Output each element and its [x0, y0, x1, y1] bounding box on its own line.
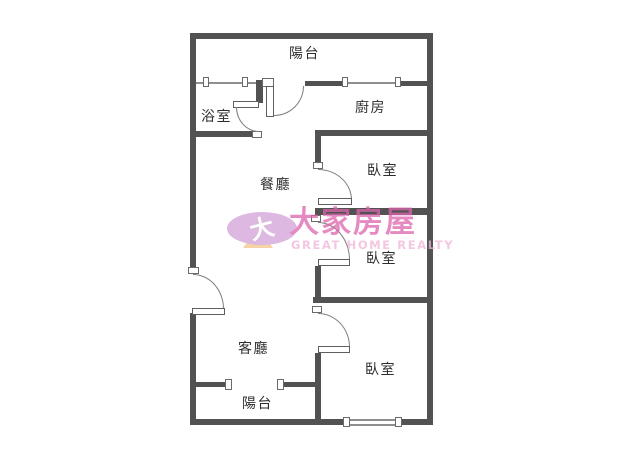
door-jamb-entrance: [188, 267, 199, 274]
brand-logo: 大: [227, 212, 297, 245]
room-label-bedroom-bottom: 臥室: [365, 363, 396, 377]
window-bedroom3: [350, 419, 395, 426]
room-label-bathroom: 浴室: [201, 110, 232, 124]
door-swing-arc-balcony-entry: [274, 86, 304, 116]
window-cap: [395, 417, 402, 427]
wall-balcony2-left: [196, 382, 225, 387]
room-label-balcony-bottom: 陽台: [242, 397, 273, 411]
door-swing-arc-bedroom3: [318, 313, 350, 347]
door-jamb-bedroom3: [312, 306, 322, 313]
room-label-bedroom-middle: 臥室: [366, 252, 397, 266]
wall-outer-left-lower: [190, 313, 196, 425]
logo-roof-triangle: [243, 226, 273, 248]
door-jamb-bedroom1: [313, 162, 323, 169]
door-leaf-bedroom1: [318, 198, 352, 205]
wall-bathroom-bottom: [190, 131, 252, 137]
opening-cap: [277, 379, 284, 390]
room-label-living: 客廳: [238, 342, 269, 356]
door-swing-arc-bedroom1: [318, 169, 352, 200]
wall-balcony-mid: [305, 81, 342, 86]
wall-outer-right: [427, 33, 433, 425]
wall-balcony2-right: [284, 382, 315, 387]
wall-bedroom2-bedroom3-divider: [313, 297, 427, 303]
door-swing-arc-bedroom2: [318, 222, 350, 260]
door-leaf-entrance: [192, 308, 225, 315]
window-line: [196, 82, 203, 84]
wall-bedroom3-left: [315, 353, 321, 419]
wall-kitchen-bottom: [315, 130, 427, 136]
wall-outer-top: [190, 33, 433, 39]
window-line: [248, 82, 256, 84]
wall-outer-bottom-right: [400, 419, 433, 425]
door-leaf-bedroom2: [318, 259, 350, 266]
wall-bedroom1-bedroom2-divider: [315, 208, 427, 215]
wall-balcony-right: [401, 81, 427, 86]
window-line: [209, 82, 242, 84]
door-jamb-bathroom: [252, 131, 262, 138]
wall-bedroom1-left: [315, 130, 321, 163]
door-swing-arc-entrance: [193, 274, 224, 309]
room-label-dining: 餐廳: [260, 178, 291, 192]
door-swing-arc-bathroom: [236, 107, 259, 132]
room-label-kitchen: 廚房: [355, 101, 386, 115]
room-label-bedroom-top: 臥室: [367, 164, 398, 178]
window-cap: [343, 417, 350, 427]
wall-bedroom2-left: [315, 266, 321, 299]
door-leaf-balcony-entry: [266, 86, 274, 117]
logo-character: 大: [247, 214, 276, 243]
wall-outer-left-upper: [190, 33, 196, 273]
floor-plan: 陽台 浴室 廚房 餐廳 臥室 臥室 臥室 客廳 陽台 大 大家房屋 GREAT …: [0, 0, 640, 461]
opening-cap: [225, 379, 232, 390]
window-line: [348, 82, 395, 84]
wall-outer-bottom-left: [190, 419, 345, 425]
room-label-balcony-top: 陽台: [289, 47, 320, 61]
door-jamb-bedroom2: [311, 215, 321, 222]
door-leaf-bedroom3: [318, 346, 350, 353]
